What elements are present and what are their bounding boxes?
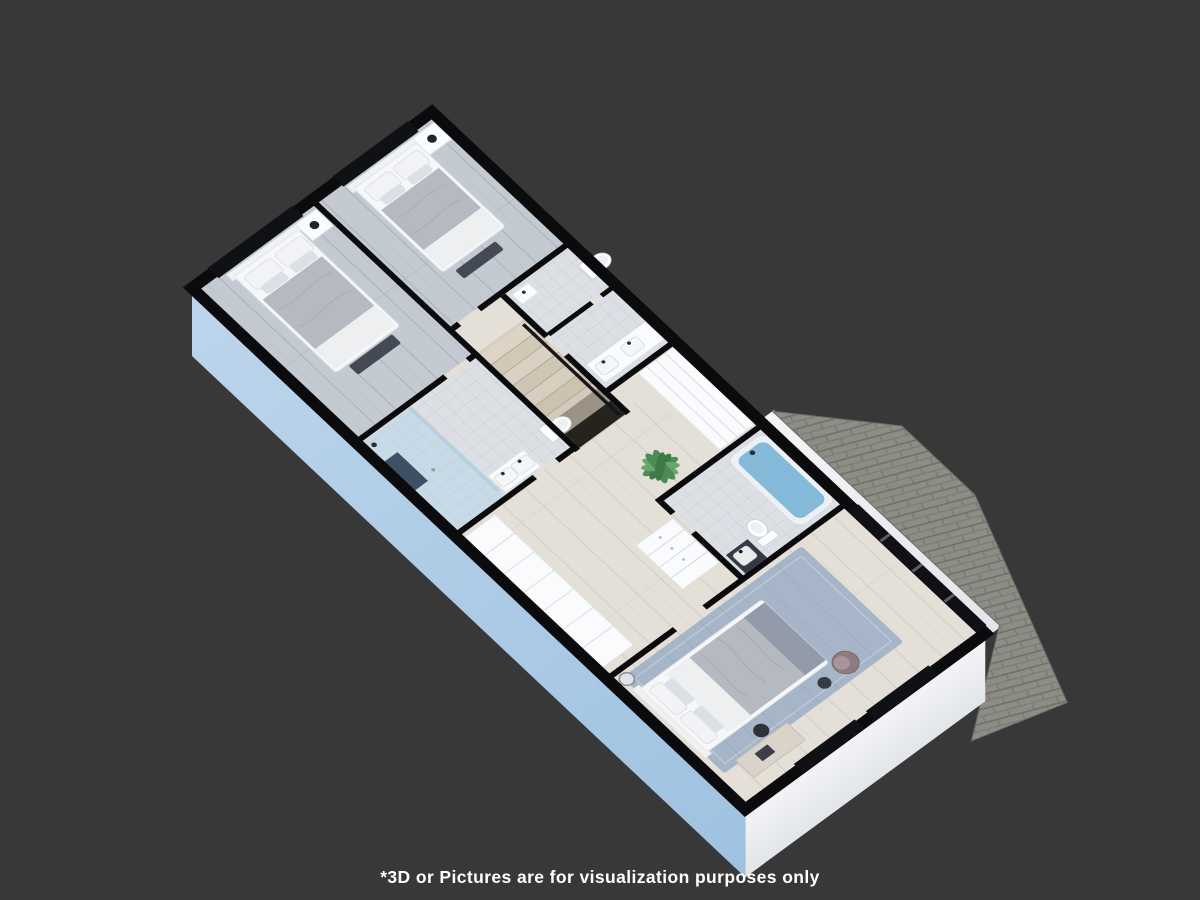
render-canvas: *3D or Pictures are for visualization pu… bbox=[0, 0, 1200, 900]
disclaimer-text: *3D or Pictures are for visualization pu… bbox=[380, 867, 820, 887]
floor-plan-render: *3D or Pictures are for visualization pu… bbox=[0, 0, 1200, 900]
